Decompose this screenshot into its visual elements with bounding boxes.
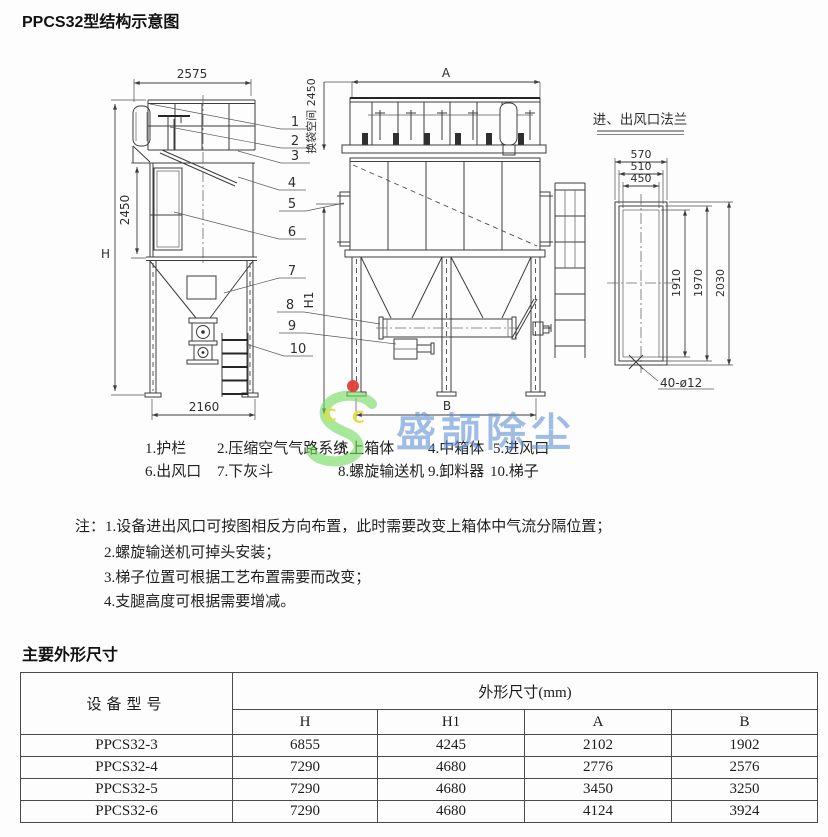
cell-A: 4124 (525, 801, 672, 823)
legend-item-10: 10.梯子 (490, 460, 539, 481)
callout-6: 6 (288, 225, 296, 240)
table-header-row-1: 设备型号 外形尺寸(mm) (21, 673, 818, 710)
notes-prefix: 注： (75, 519, 105, 535)
col-header-dims: 外形尺寸(mm) (233, 673, 818, 710)
cell-B: 3924 (672, 801, 818, 823)
watermark-letter-c2: C (352, 408, 364, 428)
side-view: 2575 H 2450 2160 (101, 67, 258, 420)
legend-item-2: 2.压缩空气气路系统 (217, 437, 348, 458)
dim-2450: 2450 (118, 195, 132, 226)
page-title: PPCS32型结构示意图 (22, 8, 179, 32)
legend-item-4: 4.中箱体 (428, 437, 484, 458)
cell-model: PPCS32-4 (21, 757, 233, 779)
dim-1910: 1910 (670, 269, 683, 297)
cell-H: 7290 (233, 801, 378, 823)
col-header-B: B (672, 710, 818, 735)
legend-item-5: 5.进风口 (493, 437, 549, 458)
cell-H: 7290 (233, 757, 378, 779)
callout-2: 2 (291, 134, 299, 149)
cell-A: 2776 (525, 757, 672, 779)
table-row: PPCS32-6 7290 4680 4124 3924 (21, 801, 818, 823)
callout-5: 5 (288, 197, 296, 212)
note-3: 3.梯子位置可根据工艺布置需要而改变； (104, 566, 370, 587)
watermark-red-dot (347, 380, 359, 392)
callout-1: 1 (291, 115, 299, 130)
callout-8: 8 (286, 298, 294, 313)
cell-H1: 4680 (378, 801, 525, 823)
cell-model: PPCS32-6 (21, 801, 233, 823)
callout-7: 7 (288, 264, 296, 279)
cell-H1: 4680 (378, 779, 525, 801)
legend-item-6: 6.出风口 (145, 460, 201, 481)
cell-model: PPCS32-5 (21, 779, 233, 801)
table-row: PPCS32-5 7290 4680 3450 3250 (21, 779, 818, 801)
legend-item-7: 7.下灰斗 (217, 460, 273, 481)
flange-view-title: 进、出风口法兰 (593, 112, 688, 128)
legend-item-8: 8.螺旋输送机 (338, 460, 424, 481)
callout-10: 10 (290, 342, 307, 357)
cell-A: 3450 (525, 779, 672, 801)
callout-9: 9 (288, 319, 296, 334)
col-header-H: H (233, 710, 378, 735)
dim-570: 570 (631, 148, 652, 161)
structure-diagram: 2575 H 2450 2160 1 2 3 4 5 6 7 8 9 10 (0, 0, 828, 475)
dim-2575: 2575 (177, 67, 208, 81)
cell-model: PPCS32-3 (21, 735, 233, 757)
callout-3: 3 (291, 149, 299, 164)
table-row: PPCS32-3 6855 4245 2102 1902 (21, 735, 818, 757)
front-view: A 换袋空间 2450 (302, 66, 585, 420)
watermark-letter-c1: C (324, 406, 336, 426)
cell-B: 1902 (672, 735, 818, 757)
col-header-A: A (525, 710, 672, 735)
dim-1970: 1970 (692, 269, 705, 297)
note-2: 2.螺旋输送机可掉头安装； (104, 541, 280, 562)
note-4: 4.支腿高度可根据需要增减。 (104, 590, 295, 611)
table-row: PPCS32-4 7290 4680 2776 2576 (21, 757, 818, 779)
dim-2160: 2160 (189, 400, 220, 414)
cell-H1: 4680 (378, 757, 525, 779)
dim-2030: 2030 (714, 269, 727, 297)
callout-labels: 1 2 3 4 5 6 7 8 9 10 (150, 104, 396, 357)
dim-510: 510 (631, 160, 652, 173)
flange-view: 进、出风口法兰 570 510 450 1910 1970 2030 40-ø1… (593, 112, 733, 390)
callout-4: 4 (288, 176, 296, 191)
cell-A: 2102 (525, 735, 672, 757)
col-header-model: 设备型号 (21, 673, 233, 735)
dim-B: B (443, 399, 451, 413)
bolt-note: 40-ø12 (660, 376, 702, 390)
dim-A: A (442, 66, 451, 80)
section-title-dimensions: 主要外形尺寸 (22, 641, 118, 665)
cell-B: 3250 (672, 779, 818, 801)
cell-H: 7290 (233, 779, 378, 801)
col-header-H1: H1 (378, 710, 525, 735)
dim-H: H (101, 247, 110, 261)
cell-H: 6855 (233, 735, 378, 757)
dim-bag-space: 换袋空间 2450 (304, 78, 318, 154)
legend-item-9: 9.卸料器 (428, 460, 484, 481)
legend-item-1: 1.护栏 (145, 437, 186, 458)
cell-H1: 4245 (378, 735, 525, 757)
legend-item-3: 3.上箱体 (338, 437, 394, 458)
cell-B: 2576 (672, 757, 818, 779)
dim-H1: H1 (302, 292, 316, 309)
note-1: 1.设备进出风口可按图相反方向布置，此时需要改变上箱体中气流分隔位置； (105, 519, 611, 535)
dim-450: 450 (631, 172, 652, 185)
dimensions-table: 设备型号 外形尺寸(mm) H H1 A B PPCS32-3 6855 424… (20, 672, 818, 823)
